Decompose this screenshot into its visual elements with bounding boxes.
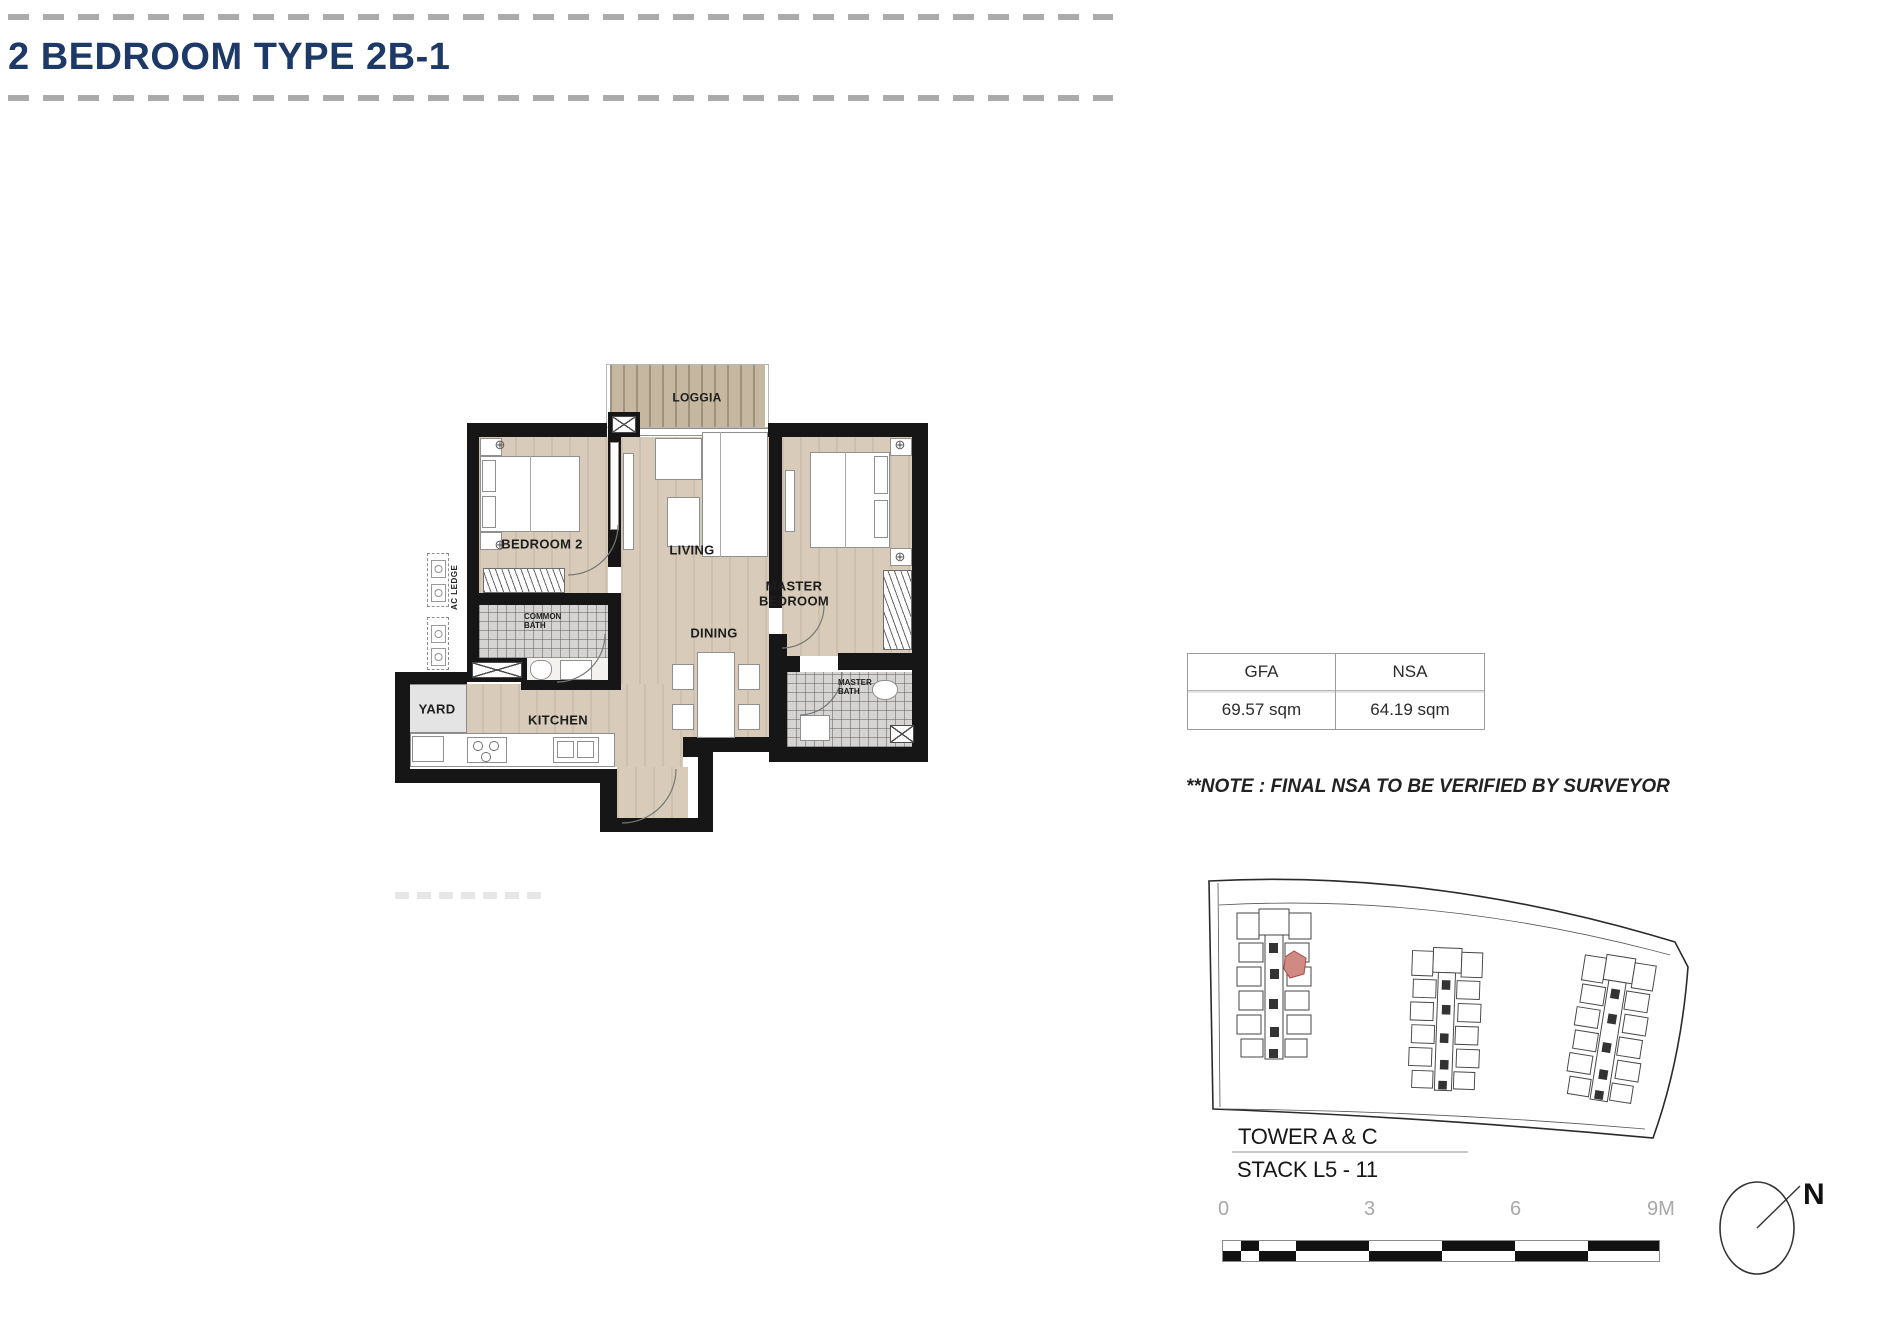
scale-bar: 0 3 6 9M (1222, 1198, 1672, 1266)
scale-bar-strip (1222, 1240, 1660, 1262)
faint-watermark (395, 892, 545, 899)
area-table-value-gfa: 69.57 sqm (1188, 691, 1336, 729)
page: 2 BEDROOM TYPE 2B-1 (0, 0, 1880, 1332)
area-table-header-gfa: GFA (1188, 654, 1336, 691)
tower-block-3 (1563, 951, 1657, 1106)
page-title: 2 BEDROOM TYPE 2B-1 (8, 36, 450, 79)
north-label: N (1803, 1178, 1825, 1211)
key-plan-stack-label: STACK L5 - 11 (1237, 1157, 1378, 1183)
room-label-living: LIVING (669, 544, 714, 559)
scale-tick-6: 6 (1510, 1198, 1521, 1221)
surveyor-note: **NOTE : FINAL NSA TO BE VERIFIED BY SUR… (1186, 776, 1670, 798)
site-key-plan (1205, 875, 1765, 1160)
scale-tick-3: 3 (1364, 1198, 1375, 1221)
area-table-value-nsa: 64.19 sqm (1336, 691, 1484, 729)
room-label-kitchen: KITCHEN (528, 714, 588, 729)
tower-block-2 (1408, 947, 1483, 1092)
north-compass-icon: N (1712, 1168, 1832, 1288)
scale-tick-0: 0 (1218, 1198, 1229, 1221)
floor-plan: ⊕ ⊕ ⊕ ⊕ (390, 360, 935, 840)
header-dashed-rule-top (8, 14, 1113, 20)
room-label-master-bath: MASTER BATH (838, 679, 884, 697)
header-dashed-rule-bottom (8, 95, 1113, 101)
area-table: GFA NSA 69.57 sqm 64.19 sqm (1187, 653, 1485, 730)
area-table-header-nsa: NSA (1336, 654, 1484, 691)
room-label-bedroom2: BEDROOM 2 (501, 538, 582, 553)
room-label-dining: DINING (690, 627, 737, 642)
room-label-common-bath: COMMON BATH (524, 613, 576, 631)
scale-tick-9m: 9M (1647, 1198, 1675, 1221)
room-label-yard: YARD (419, 703, 456, 718)
room-label-loggia: LOGGIA (672, 391, 721, 404)
key-plan-rule (1232, 1151, 1468, 1153)
door-arcs-overlay (390, 360, 935, 840)
tower-block-1 (1237, 909, 1311, 1059)
room-label-master-bedroom: MASTER BEDROOM (751, 579, 837, 608)
key-plan-tower-label: TOWER A & C (1238, 1124, 1377, 1150)
